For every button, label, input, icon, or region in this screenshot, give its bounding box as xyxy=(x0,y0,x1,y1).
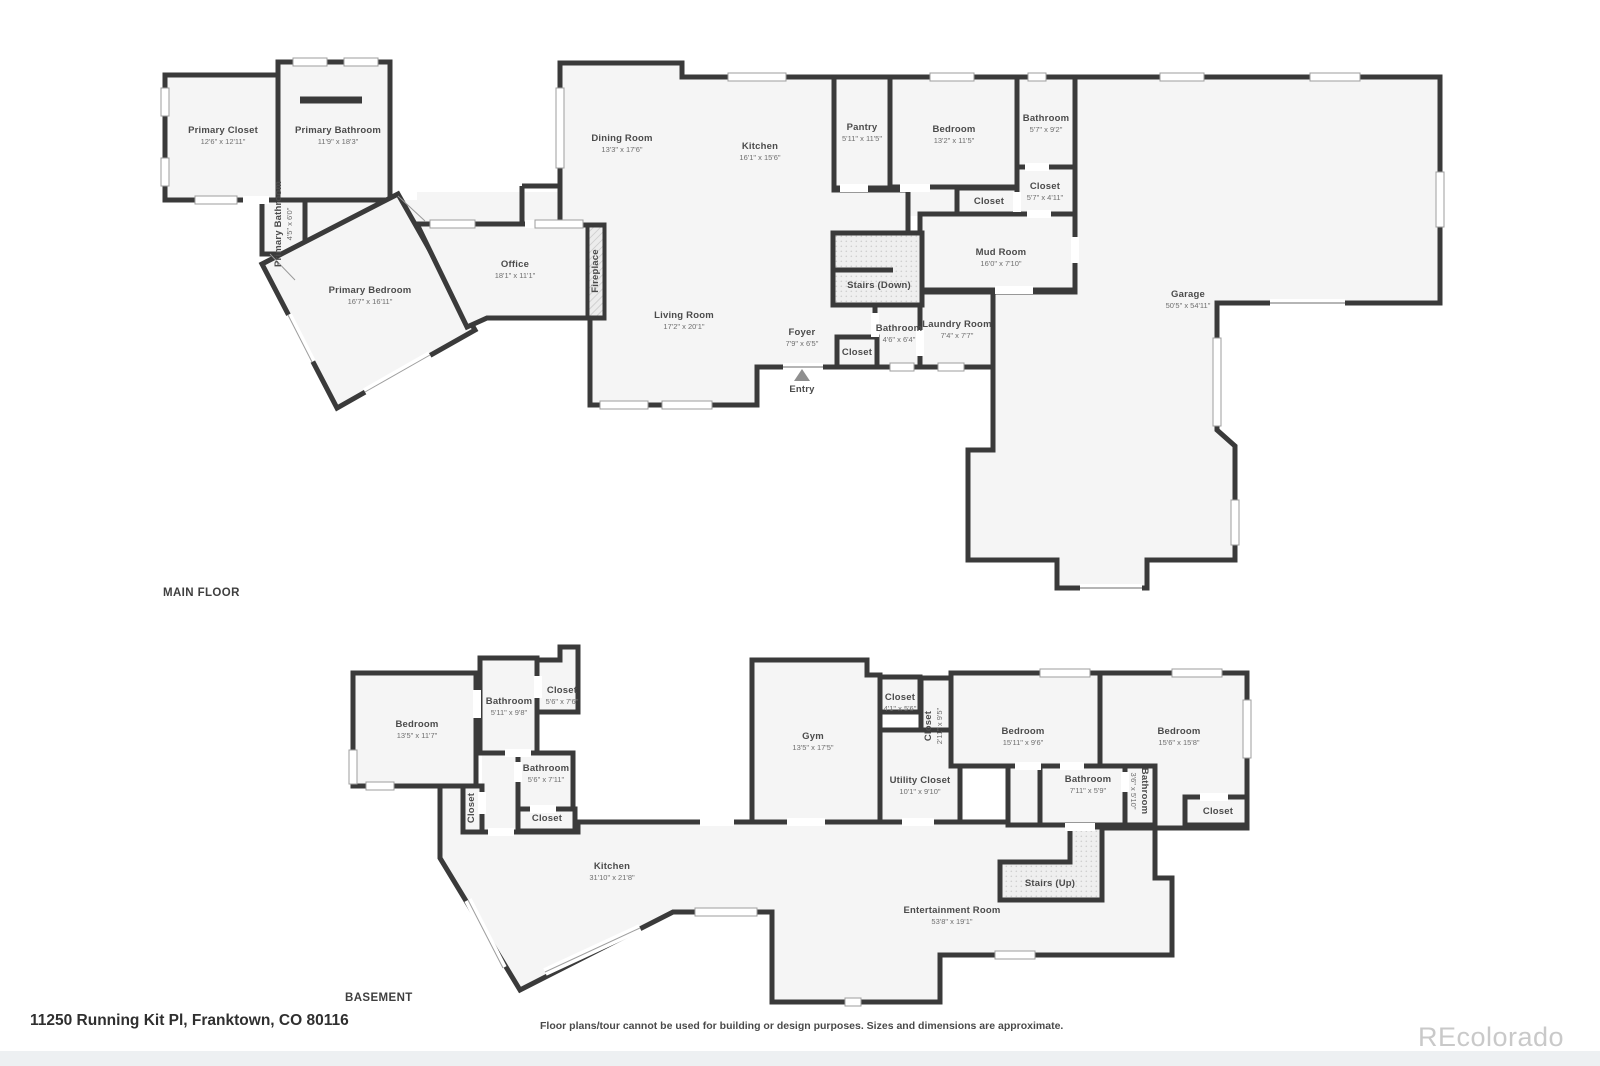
label-stairs-down: Stairs (Down) xyxy=(847,280,911,292)
label-bsmt-bathroom3: Bathroom7'11" x 5'9" xyxy=(1065,774,1111,796)
label-bsmt-kitchen: Kitchen31'10" x 21'8" xyxy=(589,861,634,883)
room-dims: 16'0" x 7'10" xyxy=(976,259,1027,269)
room-dims: 7'11" x 5'9" xyxy=(1065,786,1111,796)
floorplan-canvas xyxy=(0,0,1600,1066)
label-foyer-closet: Closet xyxy=(842,347,872,359)
label-stairs-up: Stairs (Up) xyxy=(1025,878,1075,890)
room-name: Kitchen xyxy=(739,141,780,153)
room-name: Closet xyxy=(546,685,579,697)
label-garage: Garage50'5" x 54'11" xyxy=(1166,289,1211,311)
label-closet-main: Closet5'7" x 4'11" xyxy=(1027,181,1063,203)
room-name: Closet xyxy=(466,793,478,823)
room-dims: 31'10" x 21'8" xyxy=(589,873,634,883)
label-dining-room: Dining Room13'3" x 17'6" xyxy=(591,133,652,155)
room-dims: 5'7" x 4'11" xyxy=(1027,193,1063,203)
room-dims: 3'6" x 5'10" xyxy=(1128,768,1138,814)
room-name: Bathroom xyxy=(486,696,532,708)
room-name: Laundry Room xyxy=(922,319,991,331)
label-bathroom-small: Bathroom4'6" x 6'4" xyxy=(876,323,922,345)
room-name: Entertainment Room xyxy=(903,905,1000,917)
room-name: Closet xyxy=(1203,806,1233,818)
room-name: Closet xyxy=(532,813,562,825)
label-bsmt-utility: Utility Closet10'1" x 9'10" xyxy=(890,775,951,797)
label-entertainment-room: Entertainment Room53'8" x 19'1" xyxy=(903,905,1000,927)
label-kitchen: Kitchen16'1" x 15'6" xyxy=(739,141,780,163)
room-name: Bathroom xyxy=(1138,768,1150,814)
footer-strip xyxy=(0,1051,1600,1066)
room-dims: 13'3" x 17'6" xyxy=(591,145,652,155)
room-name: Bedroom xyxy=(932,124,975,136)
bsmt-bedroom1-outline xyxy=(951,673,1100,766)
label-closet-small: Closet xyxy=(974,196,1004,208)
room-dims: 7'4" x 7'7" xyxy=(922,331,991,341)
label-primary-closet: Primary Closet12'6" x 12'11" xyxy=(188,125,258,147)
label-bedroom-main: Bedroom13'2" x 11'5" xyxy=(932,124,975,146)
room-name: Bedroom xyxy=(1001,726,1044,738)
label-bsmt-bathroom1: Bathroom5'11" x 9'8" xyxy=(486,696,532,718)
room-dims: 7'9" x 6'5" xyxy=(786,339,819,349)
label-laundry-room: Laundry Room7'4" x 7'7" xyxy=(922,319,991,341)
label-bsmt-closet5: Closet xyxy=(1203,806,1233,818)
room-name: Primary Bathroom xyxy=(273,181,285,267)
room-name: Closet xyxy=(1027,181,1063,193)
recolorado-watermark: REcolorado xyxy=(1418,1022,1564,1053)
room-name: Bathroom xyxy=(1065,774,1111,786)
room-dims: 4'1" x 5'6" xyxy=(884,704,917,714)
room-name: Bathroom xyxy=(1023,113,1069,125)
disclaimer-text: Floor plans/tour cannot be used for buil… xyxy=(540,1020,1063,1032)
room-name: Fireplace xyxy=(590,249,602,293)
label-bsmt-bathroom4: Bathroom3'6" x 5'10" xyxy=(1128,768,1150,814)
label-bsmt-bathroom2: Bathroom5'6" x 7'11" xyxy=(523,763,569,785)
room-name: Living Room xyxy=(654,310,714,322)
label-primary-bathroom: Primary Bathroom11'9" x 18'3" xyxy=(295,125,381,147)
floorplan-page: Primary Closet12'6" x 12'11" Primary Bat… xyxy=(0,0,1600,1066)
label-bsmt-closet-vert: Closet xyxy=(466,793,478,823)
label-foyer: Foyer7'9" x 6'5" xyxy=(786,327,819,349)
room-dims: 17'2" x 20'1" xyxy=(654,322,714,332)
room-dims: 13'2" x 11'5" xyxy=(932,136,975,146)
room-dims: 18'1" x 11'1" xyxy=(495,271,536,281)
room-name: Garage xyxy=(1166,289,1211,301)
room-name: Closet xyxy=(884,692,917,704)
room-name: Dining Room xyxy=(591,133,652,145)
room-dims: 12'6" x 12'11" xyxy=(188,137,258,147)
room-name: Primary Bedroom xyxy=(329,285,412,297)
room-dims: 4'5" x 6'0" xyxy=(285,181,295,267)
room-name: Gym xyxy=(792,731,833,743)
room-dims: 5'11" x 9'8" xyxy=(486,708,532,718)
label-pantry: Pantry5'11" x 11'5" xyxy=(842,122,882,144)
room-name: Kitchen xyxy=(589,861,634,873)
room-dims: 4'6" x 6'4" xyxy=(876,335,922,345)
room-dims: 15'6" x 15'8" xyxy=(1157,738,1200,748)
main-floor-title: MAIN FLOOR xyxy=(163,587,240,599)
property-address: 11250 Running Kit Pl, Franktown, CO 8011… xyxy=(30,1012,349,1030)
room-dims: 11'9" x 18'3" xyxy=(295,137,381,147)
label-bathroom-main: Bathroom5'7" x 9'2" xyxy=(1023,113,1069,135)
label-bsmt-gym: Gym13'5" x 17'5" xyxy=(792,731,833,753)
room-dims: 5'6" x 7'11" xyxy=(523,775,569,785)
label-living-room: Living Room17'2" x 20'1" xyxy=(654,310,714,332)
room-dims: 16'1" x 15'6" xyxy=(739,153,780,163)
room-name: Utility Closet xyxy=(890,775,951,787)
room-name: Closet xyxy=(974,196,1004,208)
label-fireplace: Fireplace xyxy=(590,249,602,293)
room-name: Primary Closet xyxy=(188,125,258,137)
room-dims: 2'11" x 9'5" xyxy=(935,708,945,744)
label-mud-room: Mud Room16'0" x 7'10" xyxy=(976,247,1027,269)
label-bsmt-closet4: Closet2'11" x 9'5" xyxy=(923,708,945,744)
room-dims: 10'1" x 9'10" xyxy=(890,787,951,797)
label-primary-bedroom: Primary Bedroom16'7" x 16'11" xyxy=(329,285,412,307)
room-name: Foyer xyxy=(786,327,819,339)
label-office: Office18'1" x 11'1" xyxy=(495,259,536,281)
room-name: Mud Room xyxy=(976,247,1027,259)
room-dims: 13'5" x 11'7" xyxy=(395,731,438,741)
room-name: Stairs (Up) xyxy=(1025,878,1075,890)
room-name: Office xyxy=(495,259,536,271)
label-bsmt-bedroom2: Bedroom15'6" x 15'8" xyxy=(1157,726,1200,748)
label-primary-bathroom-small: Primary Bathroom4'5" x 6'0" xyxy=(273,181,295,267)
room-dims: 53'8" x 19'1" xyxy=(903,917,1000,927)
room-name: Bedroom xyxy=(1157,726,1200,738)
label-bsmt-closet1: Closet5'6" x 7'6" xyxy=(546,685,579,707)
basement-title: BASEMENT xyxy=(345,992,413,1004)
room-name: Pantry xyxy=(842,122,882,134)
room-dims: 5'11" x 11'5" xyxy=(842,134,882,144)
room-name: Closet xyxy=(923,708,935,744)
room-name: Bathroom xyxy=(523,763,569,775)
room-dims: 15'11" x 9'6" xyxy=(1001,738,1044,748)
room-dims: 16'7" x 16'11" xyxy=(329,297,412,307)
label-bsmt-closet2: Closet xyxy=(532,813,562,825)
label-bsmt-closet3: Closet4'1" x 5'6" xyxy=(884,692,917,714)
room-dims: 50'5" x 54'11" xyxy=(1166,301,1211,311)
room-name: Closet xyxy=(842,347,872,359)
room-dims: 13'5" x 17'5" xyxy=(792,743,833,753)
label-bsmt-bedroom-nw: Bedroom13'5" x 11'7" xyxy=(395,719,438,741)
room-dims: 5'7" x 9'2" xyxy=(1023,125,1069,135)
room-name: Bathroom xyxy=(876,323,922,335)
label-bsmt-bedroom1: Bedroom15'11" x 9'6" xyxy=(1001,726,1044,748)
bsmt-hall2-outline xyxy=(1008,766,1040,825)
label-entry: Entry xyxy=(789,384,814,396)
room-name: Primary Bathroom xyxy=(295,125,381,137)
room-name: Entry xyxy=(789,384,814,396)
room-name: Stairs (Down) xyxy=(847,280,911,292)
room-name: Bedroom xyxy=(395,719,438,731)
room-dims: 5'6" x 7'6" xyxy=(546,697,579,707)
